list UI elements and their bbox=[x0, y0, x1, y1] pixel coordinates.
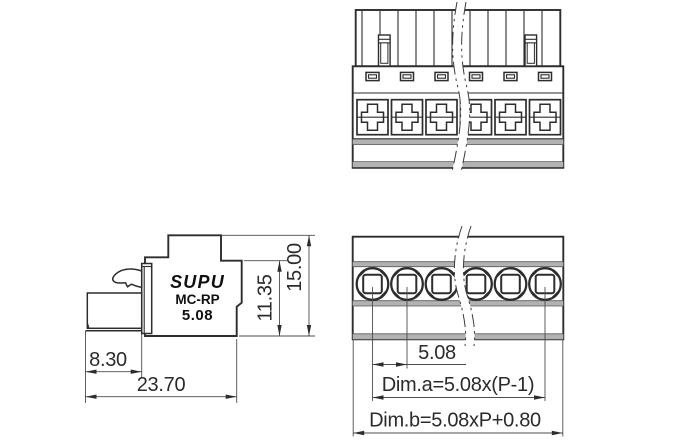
dimension-plug-depth: 8.30 bbox=[86, 349, 142, 374]
lever-icon bbox=[379, 35, 391, 66]
dimension-plug-depth-label: 8.30 bbox=[89, 349, 127, 371]
dimension-total-height: 15.00 bbox=[284, 235, 311, 336]
lever-icon bbox=[525, 35, 537, 66]
dimension-body-height-label: 11.35 bbox=[255, 274, 277, 321]
side-view-plug-body bbox=[87, 293, 141, 328]
side-view-mating-face bbox=[142, 264, 152, 334]
dimension-body-height: 11.35 bbox=[255, 261, 282, 336]
dimension-total-height-label: 15.00 bbox=[284, 243, 306, 292]
dimension-pitch-label: 5.08 bbox=[418, 342, 456, 364]
dimension-total-depth-label: 23.70 bbox=[137, 374, 186, 396]
dimension-a: Dim.a=5.08x(P-1) bbox=[373, 374, 546, 400]
dimension-b-label: Dim.b=5.08xP+0.80 bbox=[369, 410, 541, 432]
side-view: SUPU MC-RP 5.08 8.30 23.70 bbox=[86, 235, 316, 403]
pitch-label: 5.08 bbox=[182, 307, 213, 324]
dimension-b: Dim.b=5.08xP+0.80 bbox=[353, 410, 563, 436]
front-view bbox=[353, 2, 564, 172]
latch-hook bbox=[113, 269, 142, 287]
dimension-a-label: Dim.a=5.08x(P-1) bbox=[382, 374, 534, 396]
dimension-pitch: 5.08 bbox=[373, 342, 467, 367]
brand-logo: SUPU bbox=[170, 272, 225, 292]
terminal-block-drawing: 5.08 Dim.a=5.08x(P-1) Dim.b=5.08xP+0.80 bbox=[0, 0, 680, 440]
dimension-total-depth: 23.70 bbox=[86, 374, 237, 399]
series-label: MC-RP bbox=[175, 292, 219, 307]
technical-drawing-canvas: 5.08 Dim.a=5.08x(P-1) Dim.b=5.08xP+0.80 bbox=[0, 0, 680, 440]
plan-view: 5.08 Dim.a=5.08x(P-1) Dim.b=5.08xP+0.80 bbox=[353, 226, 564, 437]
